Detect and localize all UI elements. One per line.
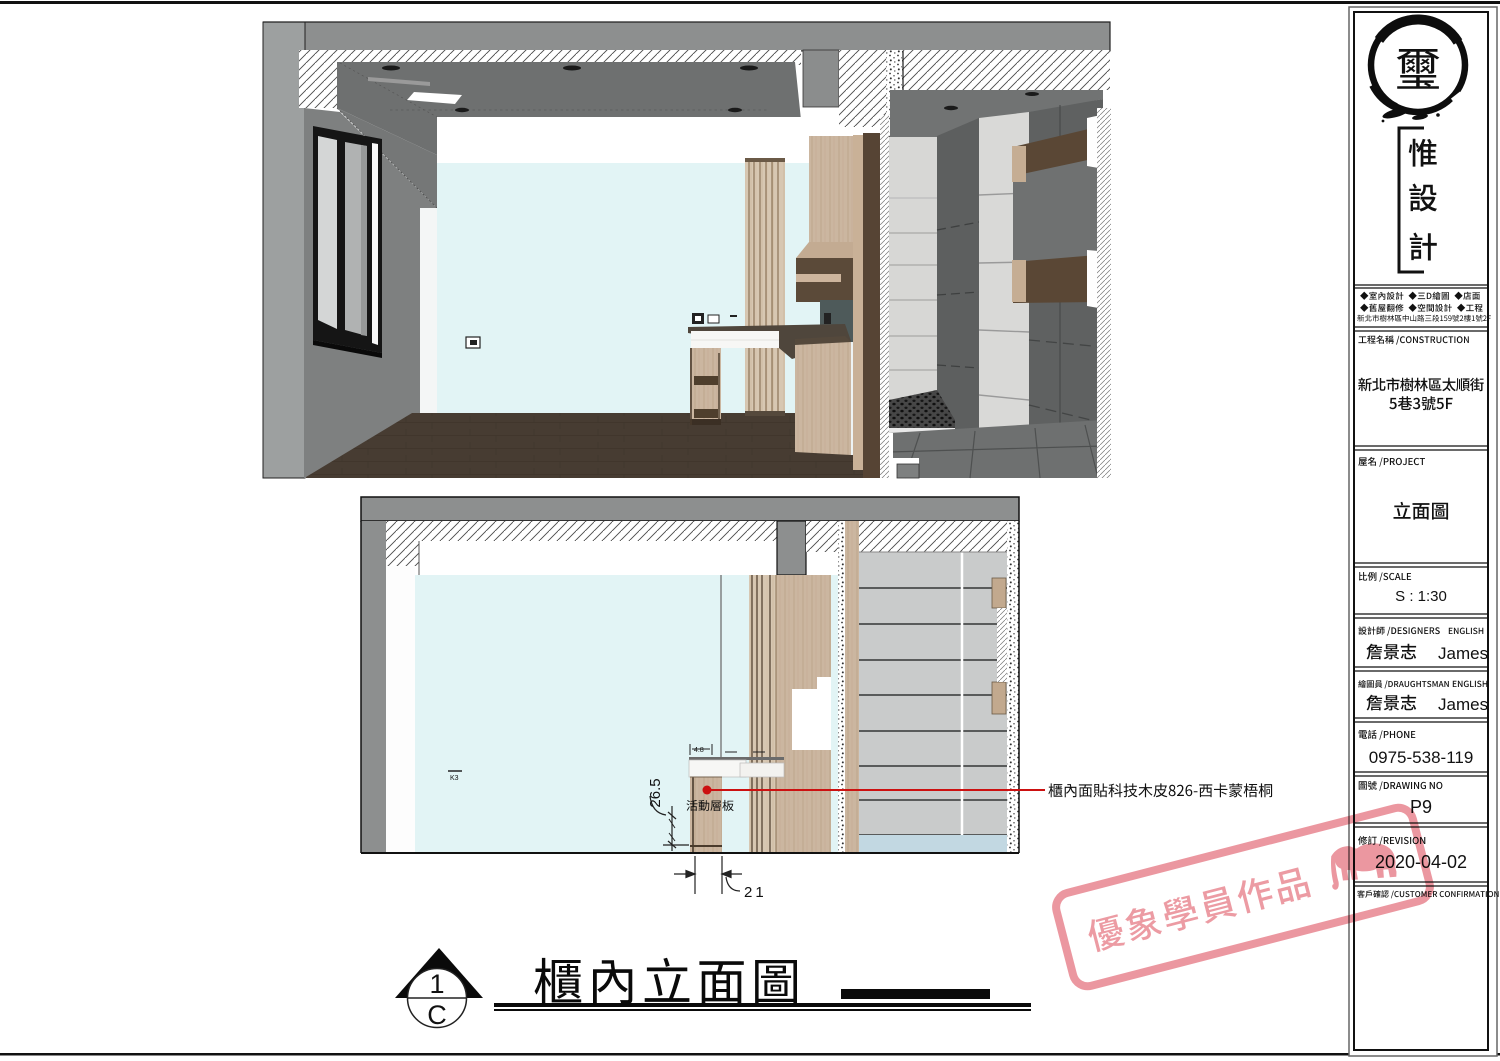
svg-text:0975-538-119: 0975-538-119 (1369, 748, 1474, 767)
svg-text:James: James (1438, 644, 1488, 663)
svg-text:James: James (1438, 695, 1488, 714)
svg-text:21: 21 (744, 884, 767, 901)
svg-text:S : 1:30: S : 1:30 (1395, 588, 1447, 605)
svg-text:1: 1 (429, 969, 444, 999)
svg-text:C: C (427, 1000, 447, 1030)
svg-text:K3: K3 (450, 775, 459, 782)
svg-text:4.8: 4.8 (694, 747, 704, 754)
svg-text:26.5: 26.5 (647, 778, 664, 807)
